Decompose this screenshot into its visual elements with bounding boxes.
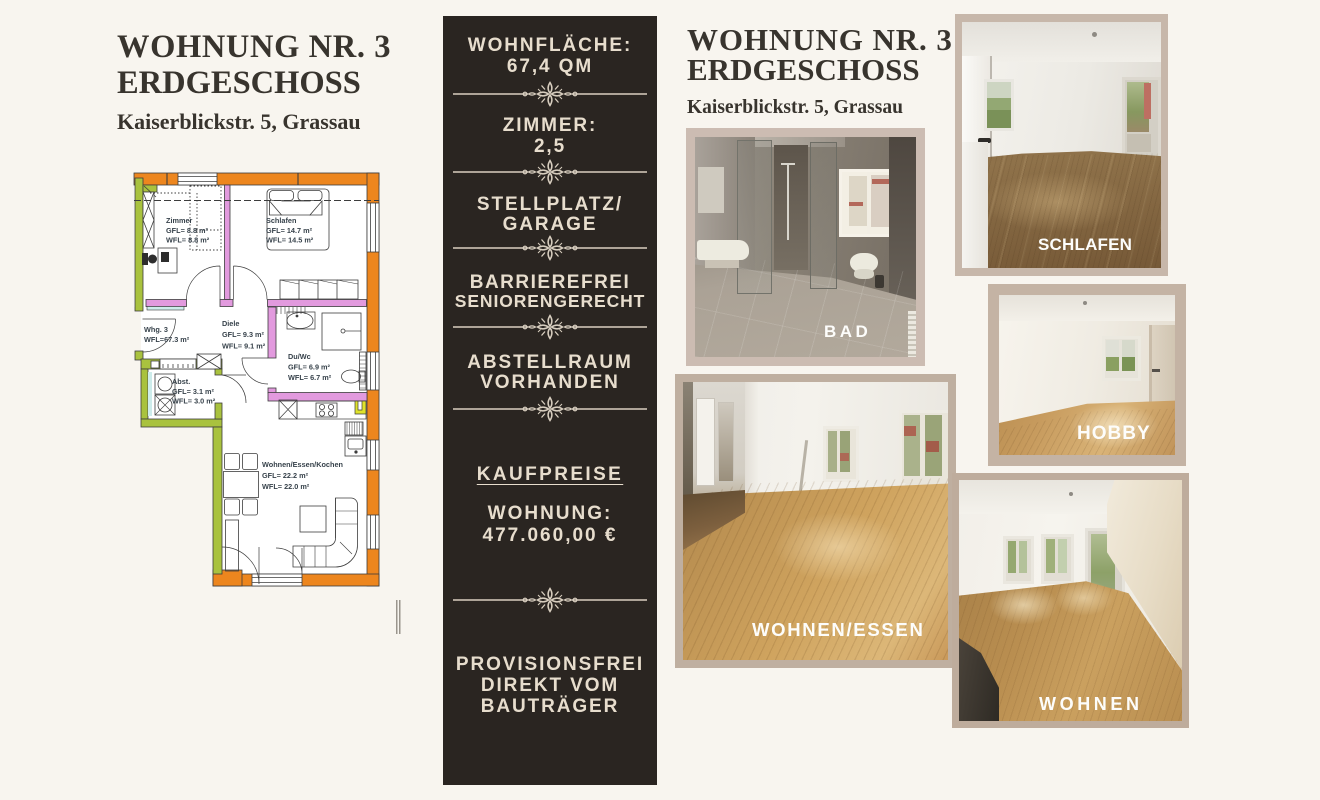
svg-text:WFL= 6.7 m²: WFL= 6.7 m² <box>288 373 332 382</box>
svg-text:WFL= 22.0 m²: WFL= 22.0 m² <box>262 482 310 491</box>
svg-text:GFL= 22.2 m²: GFL= 22.2 m² <box>262 471 309 480</box>
svg-text:Zimmer: Zimmer <box>166 216 193 225</box>
svg-text:WFL= 14.5 m²: WFL= 14.5 m² <box>266 236 314 245</box>
svg-text:Abst.: Abst. <box>172 377 190 386</box>
svg-text:WFL= 8.8 m²: WFL= 8.8 m² <box>166 236 210 245</box>
svg-text:Wohnen/Essen/Kochen: Wohnen/Essen/Kochen <box>262 460 343 469</box>
svg-text:Whg. 3: Whg. 3 <box>144 325 168 334</box>
svg-text:GFL= 8.8 m²: GFL= 8.8 m² <box>166 226 209 235</box>
svg-text:GFL= 6.9 m²: GFL= 6.9 m² <box>288 363 331 372</box>
svg-text:WFL= 3.0 m²: WFL= 3.0 m² <box>172 397 216 406</box>
svg-text:GFL= 9.3 m²: GFL= 9.3 m² <box>222 330 265 339</box>
svg-text:GFL= 3.1 m²: GFL= 3.1 m² <box>172 387 215 396</box>
svg-text:WFL=67.3 m²: WFL=67.3 m² <box>144 335 190 344</box>
svg-text:GFL= 14.7 m²: GFL= 14.7 m² <box>266 226 313 235</box>
svg-text:Du/Wc: Du/Wc <box>288 352 311 361</box>
svg-text:Schlafen: Schlafen <box>266 216 296 225</box>
svg-text:WFL= 9.1 m²: WFL= 9.1 m² <box>222 342 266 351</box>
svg-text:Diele: Diele <box>222 319 239 328</box>
